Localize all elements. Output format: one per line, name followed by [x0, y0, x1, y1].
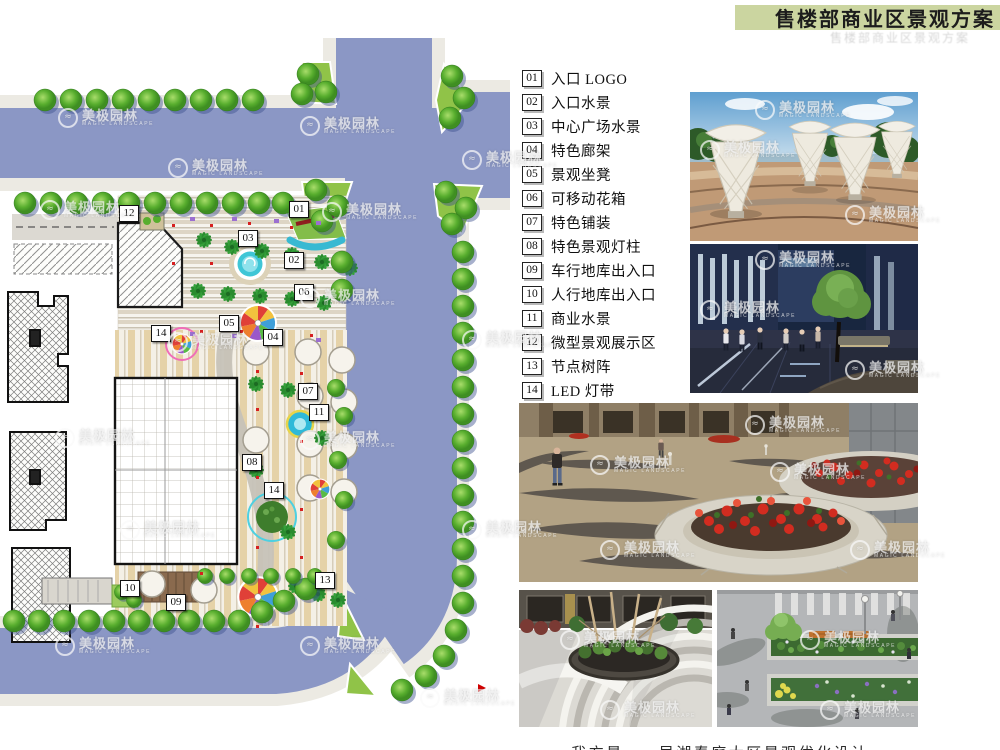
title-ghost-text: 售楼部商业区景观方案 [830, 29, 970, 46]
legend-item-number: 06 [522, 190, 542, 207]
site-plan-drawing [0, 30, 510, 722]
legend-item-number: 03 [522, 118, 542, 135]
legend-item-number: 05 [522, 166, 542, 183]
title-bar: 售楼部商业区景观方案 [735, 5, 1000, 30]
legend-item-label: 特色景观灯柱 [551, 236, 641, 257]
legend-item-03: 03中心广场水景 [522, 114, 656, 138]
legend-item-12: 12微型景观展示区 [522, 330, 656, 354]
legend-item-label: 入口水景 [551, 92, 611, 113]
legend-item-label: 微型景观展示区 [551, 332, 656, 353]
legend-item-label: 车行地库出入口 [551, 260, 656, 281]
legend-item-05: 05景观坐凳 [522, 162, 656, 186]
legend-item-11: 11商业水景 [522, 306, 656, 330]
legend-item-13: 13节点树阵 [522, 354, 656, 378]
legend-item-label: 入口 LOGO [551, 68, 627, 89]
legend-item-number: 07 [522, 214, 542, 231]
page-title: 售楼部商业区景观方案 [775, 3, 995, 32]
legend-item-14: 14LED 灯带 [522, 378, 656, 402]
legend-item-02: 02入口水景 [522, 90, 656, 114]
wicker-pavilion-plaza-photo [690, 92, 918, 241]
legend-item-label: LED 灯带 [551, 380, 615, 401]
legend-item-label: 节点树阵 [551, 356, 611, 377]
legend-item-number: 09 [522, 262, 542, 279]
legend-item-09: 09车行地库出入口 [522, 258, 656, 282]
legend-item-label: 景观坐凳 [551, 164, 611, 185]
legend-item-label: 中心广场水景 [551, 116, 641, 137]
legend-item-number: 01 [522, 70, 542, 87]
legend-item-01: 01入口 LOGO [522, 66, 656, 90]
footer-caption: 我方景——早湖春庭大区景观优化设计 [540, 742, 900, 750]
legend-item-number: 12 [522, 334, 542, 351]
legend-item-number: 08 [522, 238, 542, 255]
legend: 01入口 LOGO02入口水景03中心广场水景04特色廊架05景观坐凳06可移动… [522, 66, 656, 402]
legend-item-06: 06可移动花箱 [522, 186, 656, 210]
legend-item-08: 08特色景观灯柱 [522, 234, 656, 258]
legend-item-number: 02 [522, 94, 542, 111]
legend-item-number: 14 [522, 382, 542, 399]
commercial-building [115, 378, 237, 564]
legend-item-number: 11 [522, 310, 542, 327]
legend-item-label: 商业水景 [551, 308, 611, 329]
legend-item-number: 13 [522, 358, 542, 375]
legend-item-label: 人行地库出入口 [551, 284, 656, 305]
round-flower-planters-plaza-photo [519, 403, 918, 582]
legend-item-label: 特色铺装 [551, 212, 611, 233]
legend-item-label: 特色廊架 [551, 140, 611, 161]
courtyard-oval-tree-planter-photo [519, 590, 712, 727]
legend-item-10: 10人行地库出入口 [522, 282, 656, 306]
aerial-street-planter-strips-photo [717, 590, 918, 727]
legend-item-04: 04特色廊架 [522, 138, 656, 162]
site-plan [0, 30, 510, 722]
legend-item-number: 10 [522, 286, 542, 303]
legend-item-number: 04 [522, 142, 542, 159]
entry-drive [12, 214, 118, 274]
presentation-board: 售楼部商业区景观方案 售楼部商业区景观方案 01入口 LOGO02入口水景03中… [0, 0, 1000, 750]
legend-item-07: 07特色铺装 [522, 210, 656, 234]
night-commercial-street-photo [690, 244, 918, 393]
legend-item-label: 可移动花箱 [551, 188, 626, 209]
